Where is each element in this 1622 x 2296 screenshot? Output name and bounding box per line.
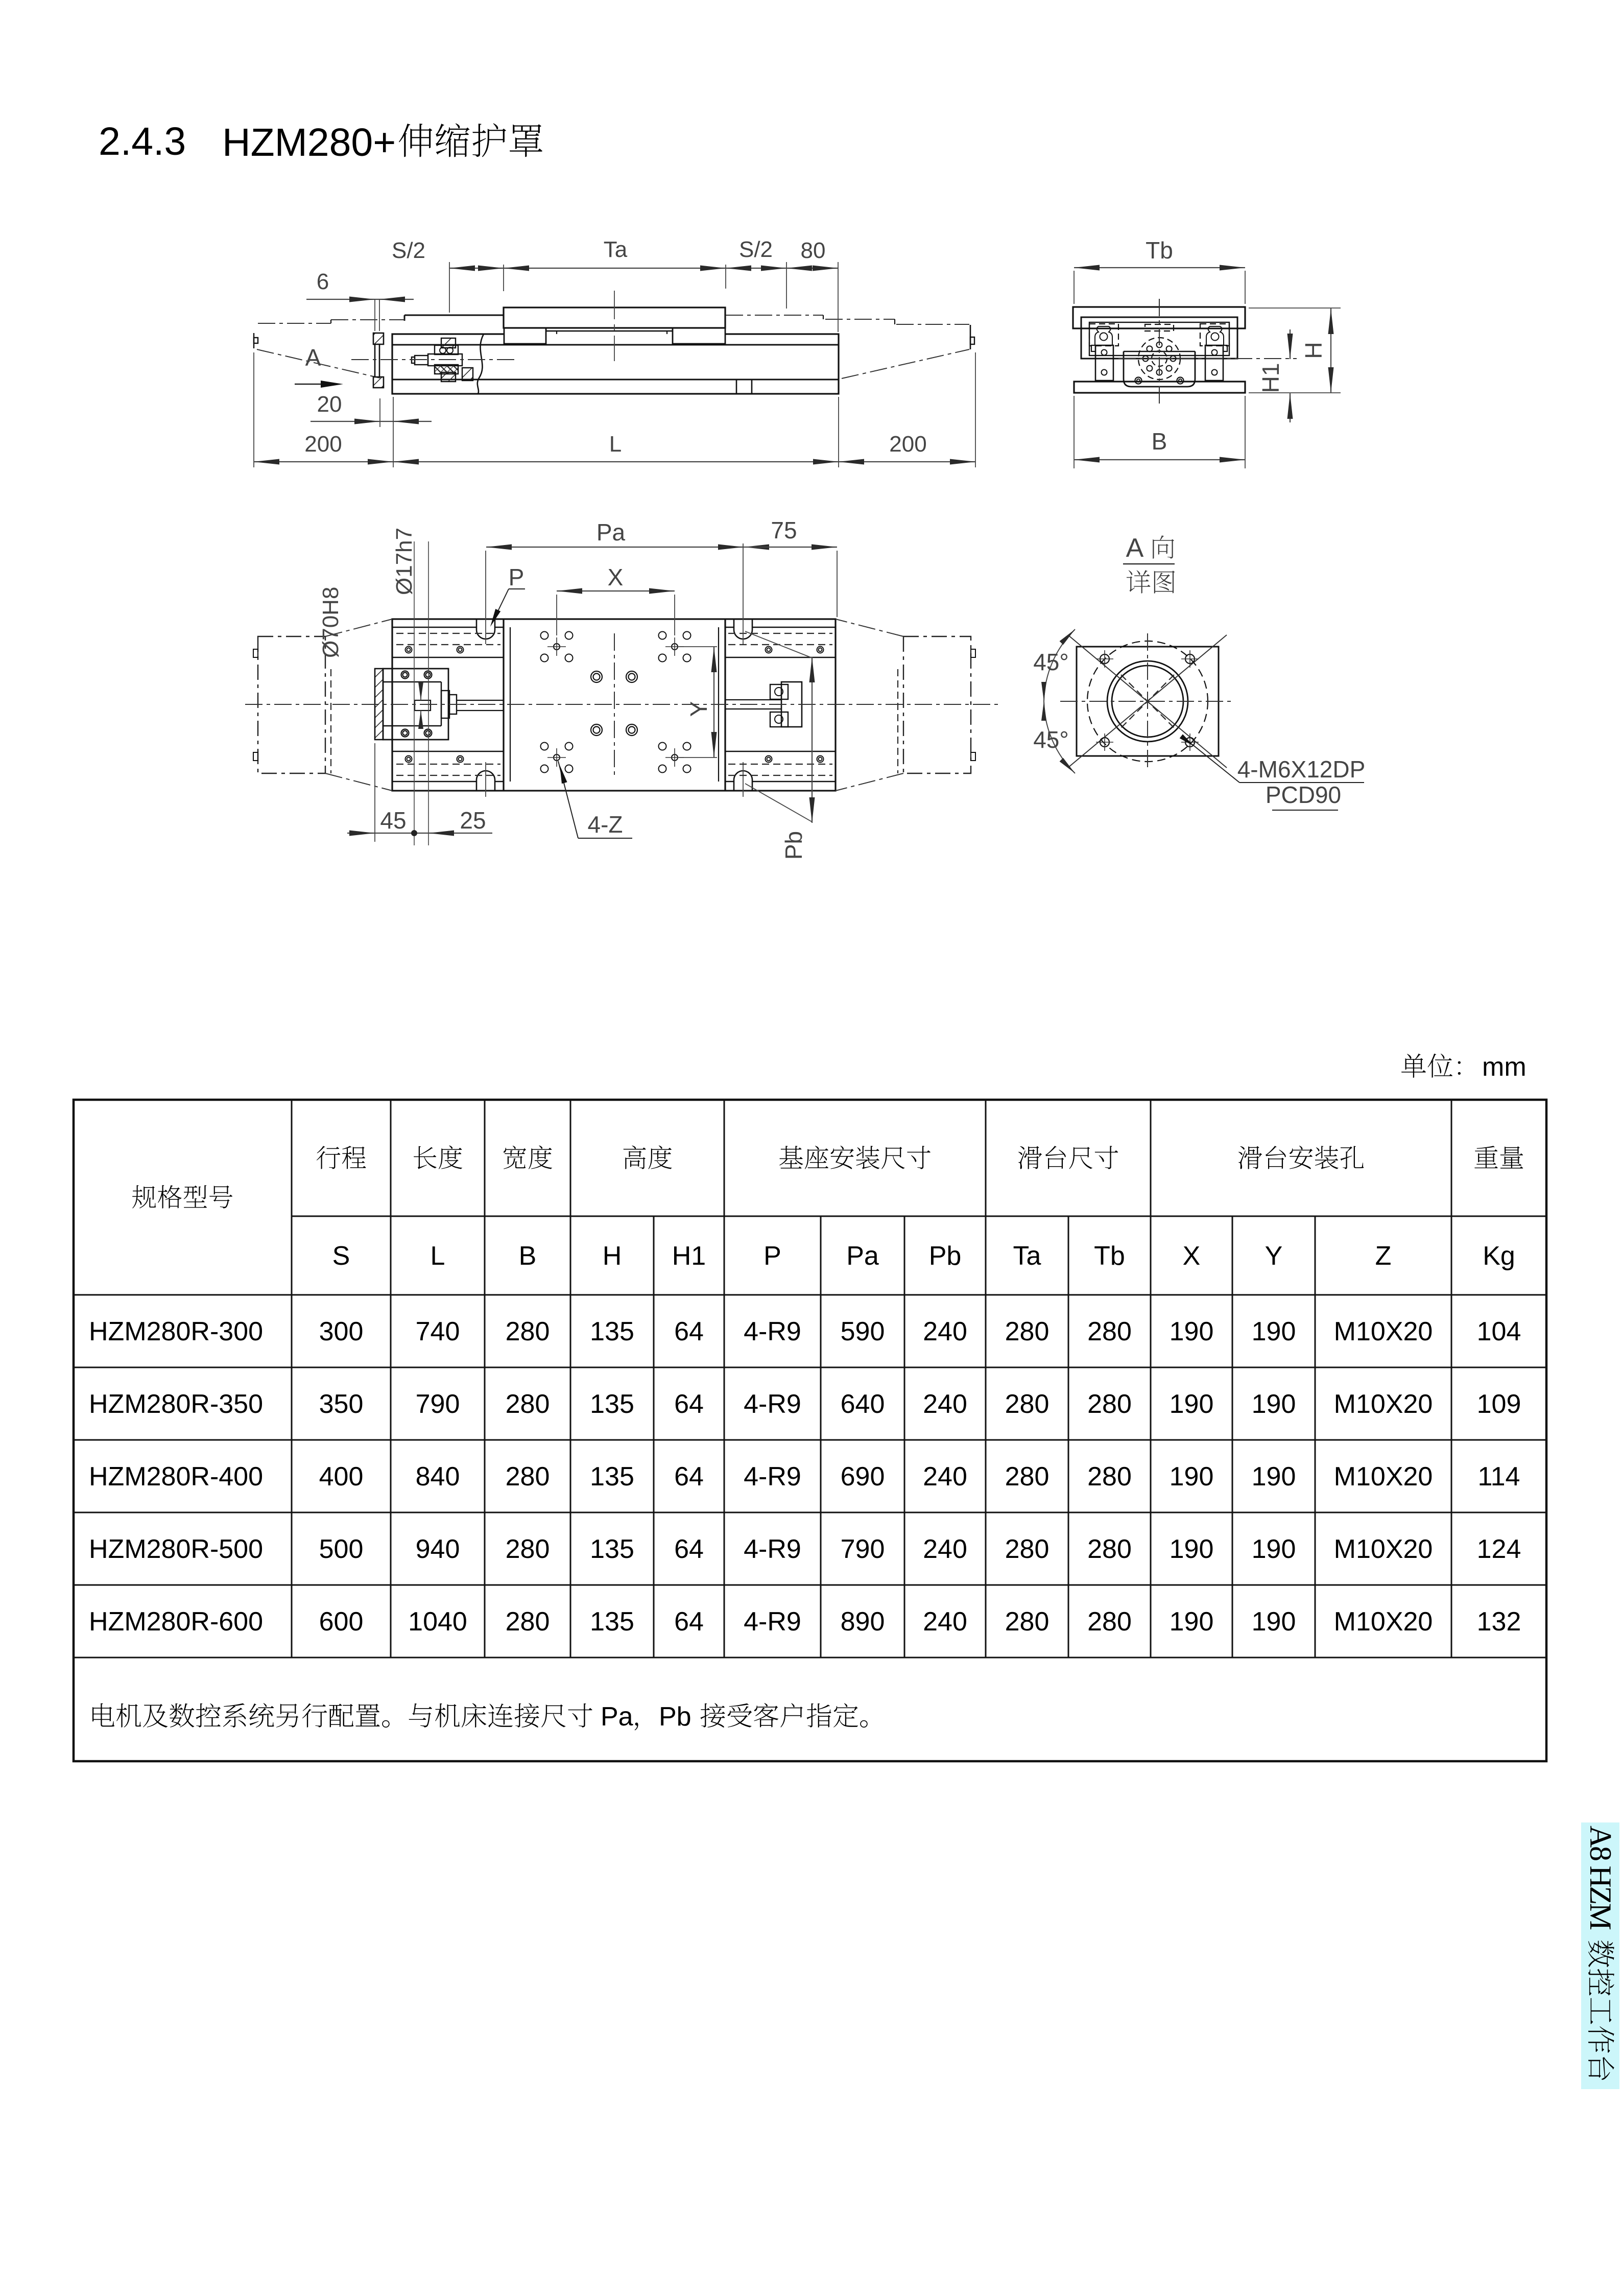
svg-text:280: 280 bbox=[1087, 1462, 1132, 1492]
svg-text:64: 64 bbox=[674, 1317, 704, 1346]
svg-text:H1: H1 bbox=[1257, 363, 1284, 393]
svg-text:M10X20: M10X20 bbox=[1334, 1389, 1433, 1419]
svg-text:M10X20: M10X20 bbox=[1334, 1534, 1433, 1564]
svg-text:280: 280 bbox=[1005, 1534, 1049, 1564]
svg-text:S/2: S/2 bbox=[739, 237, 773, 262]
svg-text:H1: H1 bbox=[672, 1241, 706, 1271]
svg-text:280: 280 bbox=[1087, 1607, 1132, 1637]
svg-text:240: 240 bbox=[923, 1389, 967, 1419]
svg-text:45: 45 bbox=[380, 807, 406, 834]
svg-text:200: 200 bbox=[304, 432, 342, 457]
svg-text:240: 240 bbox=[923, 1534, 967, 1564]
svg-text:132: 132 bbox=[1477, 1607, 1521, 1637]
svg-text:690: 690 bbox=[841, 1462, 885, 1492]
svg-text:190: 190 bbox=[1252, 1534, 1296, 1564]
svg-text:Z: Z bbox=[1375, 1241, 1392, 1271]
svg-text:20: 20 bbox=[317, 392, 342, 417]
svg-text:400: 400 bbox=[319, 1462, 364, 1492]
svg-text:300: 300 bbox=[319, 1317, 364, 1346]
svg-text:4-R9: 4-R9 bbox=[744, 1317, 801, 1346]
svg-text:190: 190 bbox=[1252, 1389, 1296, 1419]
svg-text:280: 280 bbox=[506, 1389, 550, 1419]
svg-text:280: 280 bbox=[1005, 1462, 1049, 1492]
svg-text:M10X20: M10X20 bbox=[1334, 1317, 1433, 1346]
svg-text:240: 240 bbox=[923, 1317, 967, 1346]
svg-text:135: 135 bbox=[590, 1607, 634, 1637]
svg-text:135: 135 bbox=[590, 1389, 634, 1419]
svg-text:740: 740 bbox=[416, 1317, 460, 1346]
svg-text:4-R9: 4-R9 bbox=[744, 1389, 801, 1419]
svg-text:190: 190 bbox=[1252, 1607, 1296, 1637]
svg-text:200: 200 bbox=[889, 432, 926, 457]
svg-text:114: 114 bbox=[1478, 1462, 1520, 1492]
svg-text:500: 500 bbox=[319, 1534, 364, 1564]
svg-text:4-R9: 4-R9 bbox=[744, 1534, 801, 1564]
svg-text:PCD90: PCD90 bbox=[1266, 782, 1341, 808]
svg-text:25: 25 bbox=[460, 807, 486, 834]
svg-text:4-M6X12DP: 4-M6X12DP bbox=[1237, 756, 1366, 783]
svg-text:190: 190 bbox=[1170, 1389, 1214, 1419]
svg-text:280: 280 bbox=[1005, 1607, 1049, 1637]
svg-text:M10X20: M10X20 bbox=[1334, 1462, 1433, 1492]
svg-text:64: 64 bbox=[674, 1462, 704, 1492]
svg-text:135: 135 bbox=[590, 1462, 634, 1492]
svg-text:64: 64 bbox=[674, 1389, 704, 1419]
svg-text:mm: mm bbox=[1482, 1052, 1526, 1082]
svg-text:190: 190 bbox=[1170, 1607, 1214, 1637]
svg-text:240: 240 bbox=[923, 1462, 967, 1492]
svg-text:840: 840 bbox=[416, 1462, 460, 1492]
svg-text:Pa: Pa bbox=[601, 1702, 633, 1732]
svg-text:S: S bbox=[332, 1241, 350, 1271]
svg-text:B: B bbox=[519, 1241, 537, 1271]
svg-text:280: 280 bbox=[506, 1607, 550, 1637]
svg-text:64: 64 bbox=[674, 1607, 704, 1637]
svg-text:Tb: Tb bbox=[1146, 237, 1173, 264]
svg-text:590: 590 bbox=[841, 1317, 885, 1346]
svg-text:Y: Y bbox=[1265, 1241, 1283, 1271]
svg-text:45°: 45° bbox=[1033, 649, 1069, 675]
svg-text:Y: Y bbox=[685, 701, 712, 717]
svg-text:790: 790 bbox=[416, 1389, 460, 1419]
svg-text:2.4.3: 2.4.3 bbox=[99, 120, 186, 163]
svg-text:4-Z: 4-Z bbox=[588, 811, 623, 838]
svg-text:790: 790 bbox=[841, 1534, 885, 1564]
svg-text:L: L bbox=[609, 432, 622, 457]
svg-text:Pb: Pb bbox=[780, 831, 807, 860]
svg-text:HZM280R-400: HZM280R-400 bbox=[89, 1462, 263, 1492]
svg-text:75: 75 bbox=[771, 517, 797, 543]
svg-text:M10X20: M10X20 bbox=[1334, 1607, 1433, 1637]
svg-text:HZM280R-500: HZM280R-500 bbox=[89, 1534, 263, 1564]
svg-text:104: 104 bbox=[1477, 1317, 1521, 1346]
svg-text:64: 64 bbox=[674, 1534, 704, 1564]
svg-text:X: X bbox=[608, 564, 624, 590]
svg-text:940: 940 bbox=[416, 1534, 460, 1564]
svg-text:Tb: Tb bbox=[1094, 1241, 1125, 1271]
svg-text:Pb: Pb bbox=[929, 1241, 962, 1271]
svg-text:X: X bbox=[1183, 1241, 1201, 1271]
svg-text:190: 190 bbox=[1252, 1317, 1296, 1346]
svg-text:4-R9: 4-R9 bbox=[744, 1462, 801, 1492]
svg-text:190: 190 bbox=[1170, 1534, 1214, 1564]
svg-text:S/2: S/2 bbox=[392, 238, 425, 263]
svg-text:124: 124 bbox=[1477, 1534, 1521, 1564]
svg-text:280: 280 bbox=[506, 1462, 550, 1492]
svg-text:H: H bbox=[603, 1241, 622, 1271]
svg-text:640: 640 bbox=[841, 1389, 885, 1419]
svg-text:A: A bbox=[305, 344, 321, 371]
svg-text:Pa: Pa bbox=[597, 519, 626, 546]
svg-text:A8 HZM: A8 HZM bbox=[1584, 1826, 1617, 1930]
svg-text:4-R9: 4-R9 bbox=[744, 1607, 801, 1637]
svg-text:80: 80 bbox=[801, 238, 826, 263]
svg-text:890: 890 bbox=[841, 1607, 885, 1637]
svg-text:135: 135 bbox=[590, 1317, 634, 1346]
svg-text:350: 350 bbox=[319, 1389, 364, 1419]
svg-text:Ta: Ta bbox=[604, 237, 628, 262]
svg-text:Pa: Pa bbox=[846, 1241, 879, 1271]
svg-text:H: H bbox=[1300, 342, 1327, 359]
svg-text:HZM280R-350: HZM280R-350 bbox=[89, 1389, 263, 1419]
svg-text:6: 6 bbox=[317, 269, 329, 294]
svg-text:HZM280R-300: HZM280R-300 bbox=[89, 1317, 263, 1346]
svg-text:190: 190 bbox=[1170, 1462, 1214, 1492]
svg-text:280: 280 bbox=[1005, 1317, 1049, 1346]
svg-text:109: 109 bbox=[1477, 1389, 1521, 1419]
svg-text:280: 280 bbox=[1087, 1389, 1132, 1419]
svg-text:Pb: Pb bbox=[659, 1702, 691, 1732]
svg-text:HZM280R-600: HZM280R-600 bbox=[89, 1607, 263, 1637]
svg-text:45°: 45° bbox=[1033, 726, 1069, 753]
svg-text:280: 280 bbox=[1087, 1317, 1132, 1346]
svg-text:190: 190 bbox=[1170, 1317, 1214, 1346]
svg-text:1040: 1040 bbox=[408, 1607, 467, 1637]
svg-text:240: 240 bbox=[923, 1607, 967, 1637]
svg-text:HZM280+: HZM280+ bbox=[222, 121, 396, 164]
svg-text:135: 135 bbox=[590, 1534, 634, 1564]
svg-text:280: 280 bbox=[1087, 1534, 1132, 1564]
svg-text:A: A bbox=[1126, 533, 1144, 563]
svg-text:P: P bbox=[764, 1241, 781, 1271]
svg-text:280: 280 bbox=[506, 1534, 550, 1564]
svg-text:190: 190 bbox=[1252, 1462, 1296, 1492]
svg-text:280: 280 bbox=[506, 1317, 550, 1346]
svg-text:L: L bbox=[431, 1241, 445, 1271]
svg-text:600: 600 bbox=[319, 1607, 364, 1637]
svg-text:Ø70H8: Ø70H8 bbox=[318, 587, 343, 658]
svg-text:Ø17h7: Ø17h7 bbox=[392, 528, 417, 595]
svg-text:P: P bbox=[509, 564, 524, 590]
svg-text:280: 280 bbox=[1005, 1389, 1049, 1419]
svg-text:Kg: Kg bbox=[1483, 1241, 1515, 1271]
svg-text:Ta: Ta bbox=[1013, 1241, 1041, 1271]
svg-text:B: B bbox=[1152, 428, 1167, 455]
